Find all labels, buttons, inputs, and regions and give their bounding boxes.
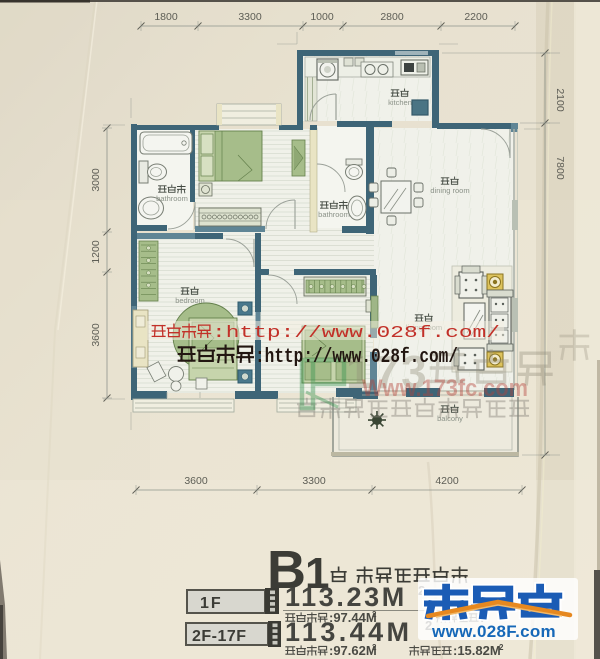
svg-text:3600: 3600 [90, 323, 102, 347]
svg-text:kitchen: kitchen [388, 98, 412, 107]
svg-text::15.82M: :15.82M [453, 643, 501, 658]
svg-text:2F-17F: 2F-17F [192, 628, 247, 645]
svg-text:dining room: dining room [430, 186, 469, 195]
svg-text:4200: 4200 [435, 475, 459, 487]
svg-text:3000: 3000 [90, 168, 102, 192]
svg-text:3600: 3600 [184, 475, 208, 487]
svg-text:bathroom: bathroom [318, 210, 350, 219]
svg-text:1F: 1F [200, 595, 223, 612]
svg-text::http://www.028f.com/: :http://www.028f.com/ [212, 324, 500, 343]
svg-text::97.62M: :97.62M [329, 643, 377, 658]
svg-text:2: 2 [372, 643, 377, 652]
svg-text:1800: 1800 [154, 11, 178, 23]
svg-text:113.23M: 113.23M [285, 582, 407, 612]
svg-text:bedroom: bedroom [175, 296, 205, 305]
svg-text::http://www.028f.com/: :http://www.028f.com/ [255, 346, 458, 369]
svg-text:2100: 2100 [554, 88, 566, 112]
svg-text:bathroom: bathroom [156, 194, 188, 203]
svg-text:2: 2 [499, 643, 504, 652]
svg-text:1200: 1200 [90, 240, 102, 264]
svg-text:3300: 3300 [302, 475, 326, 487]
svg-text:www.028F.com: www.028F.com [431, 622, 556, 641]
svg-text:Www.173fc.com: Www.173fc.com [362, 375, 528, 402]
svg-text:2200: 2200 [464, 11, 488, 23]
svg-text:7800: 7800 [554, 156, 566, 180]
svg-text:2800: 2800 [380, 11, 404, 23]
svg-text:3300: 3300 [238, 11, 262, 23]
svg-text:1000: 1000 [310, 11, 334, 23]
